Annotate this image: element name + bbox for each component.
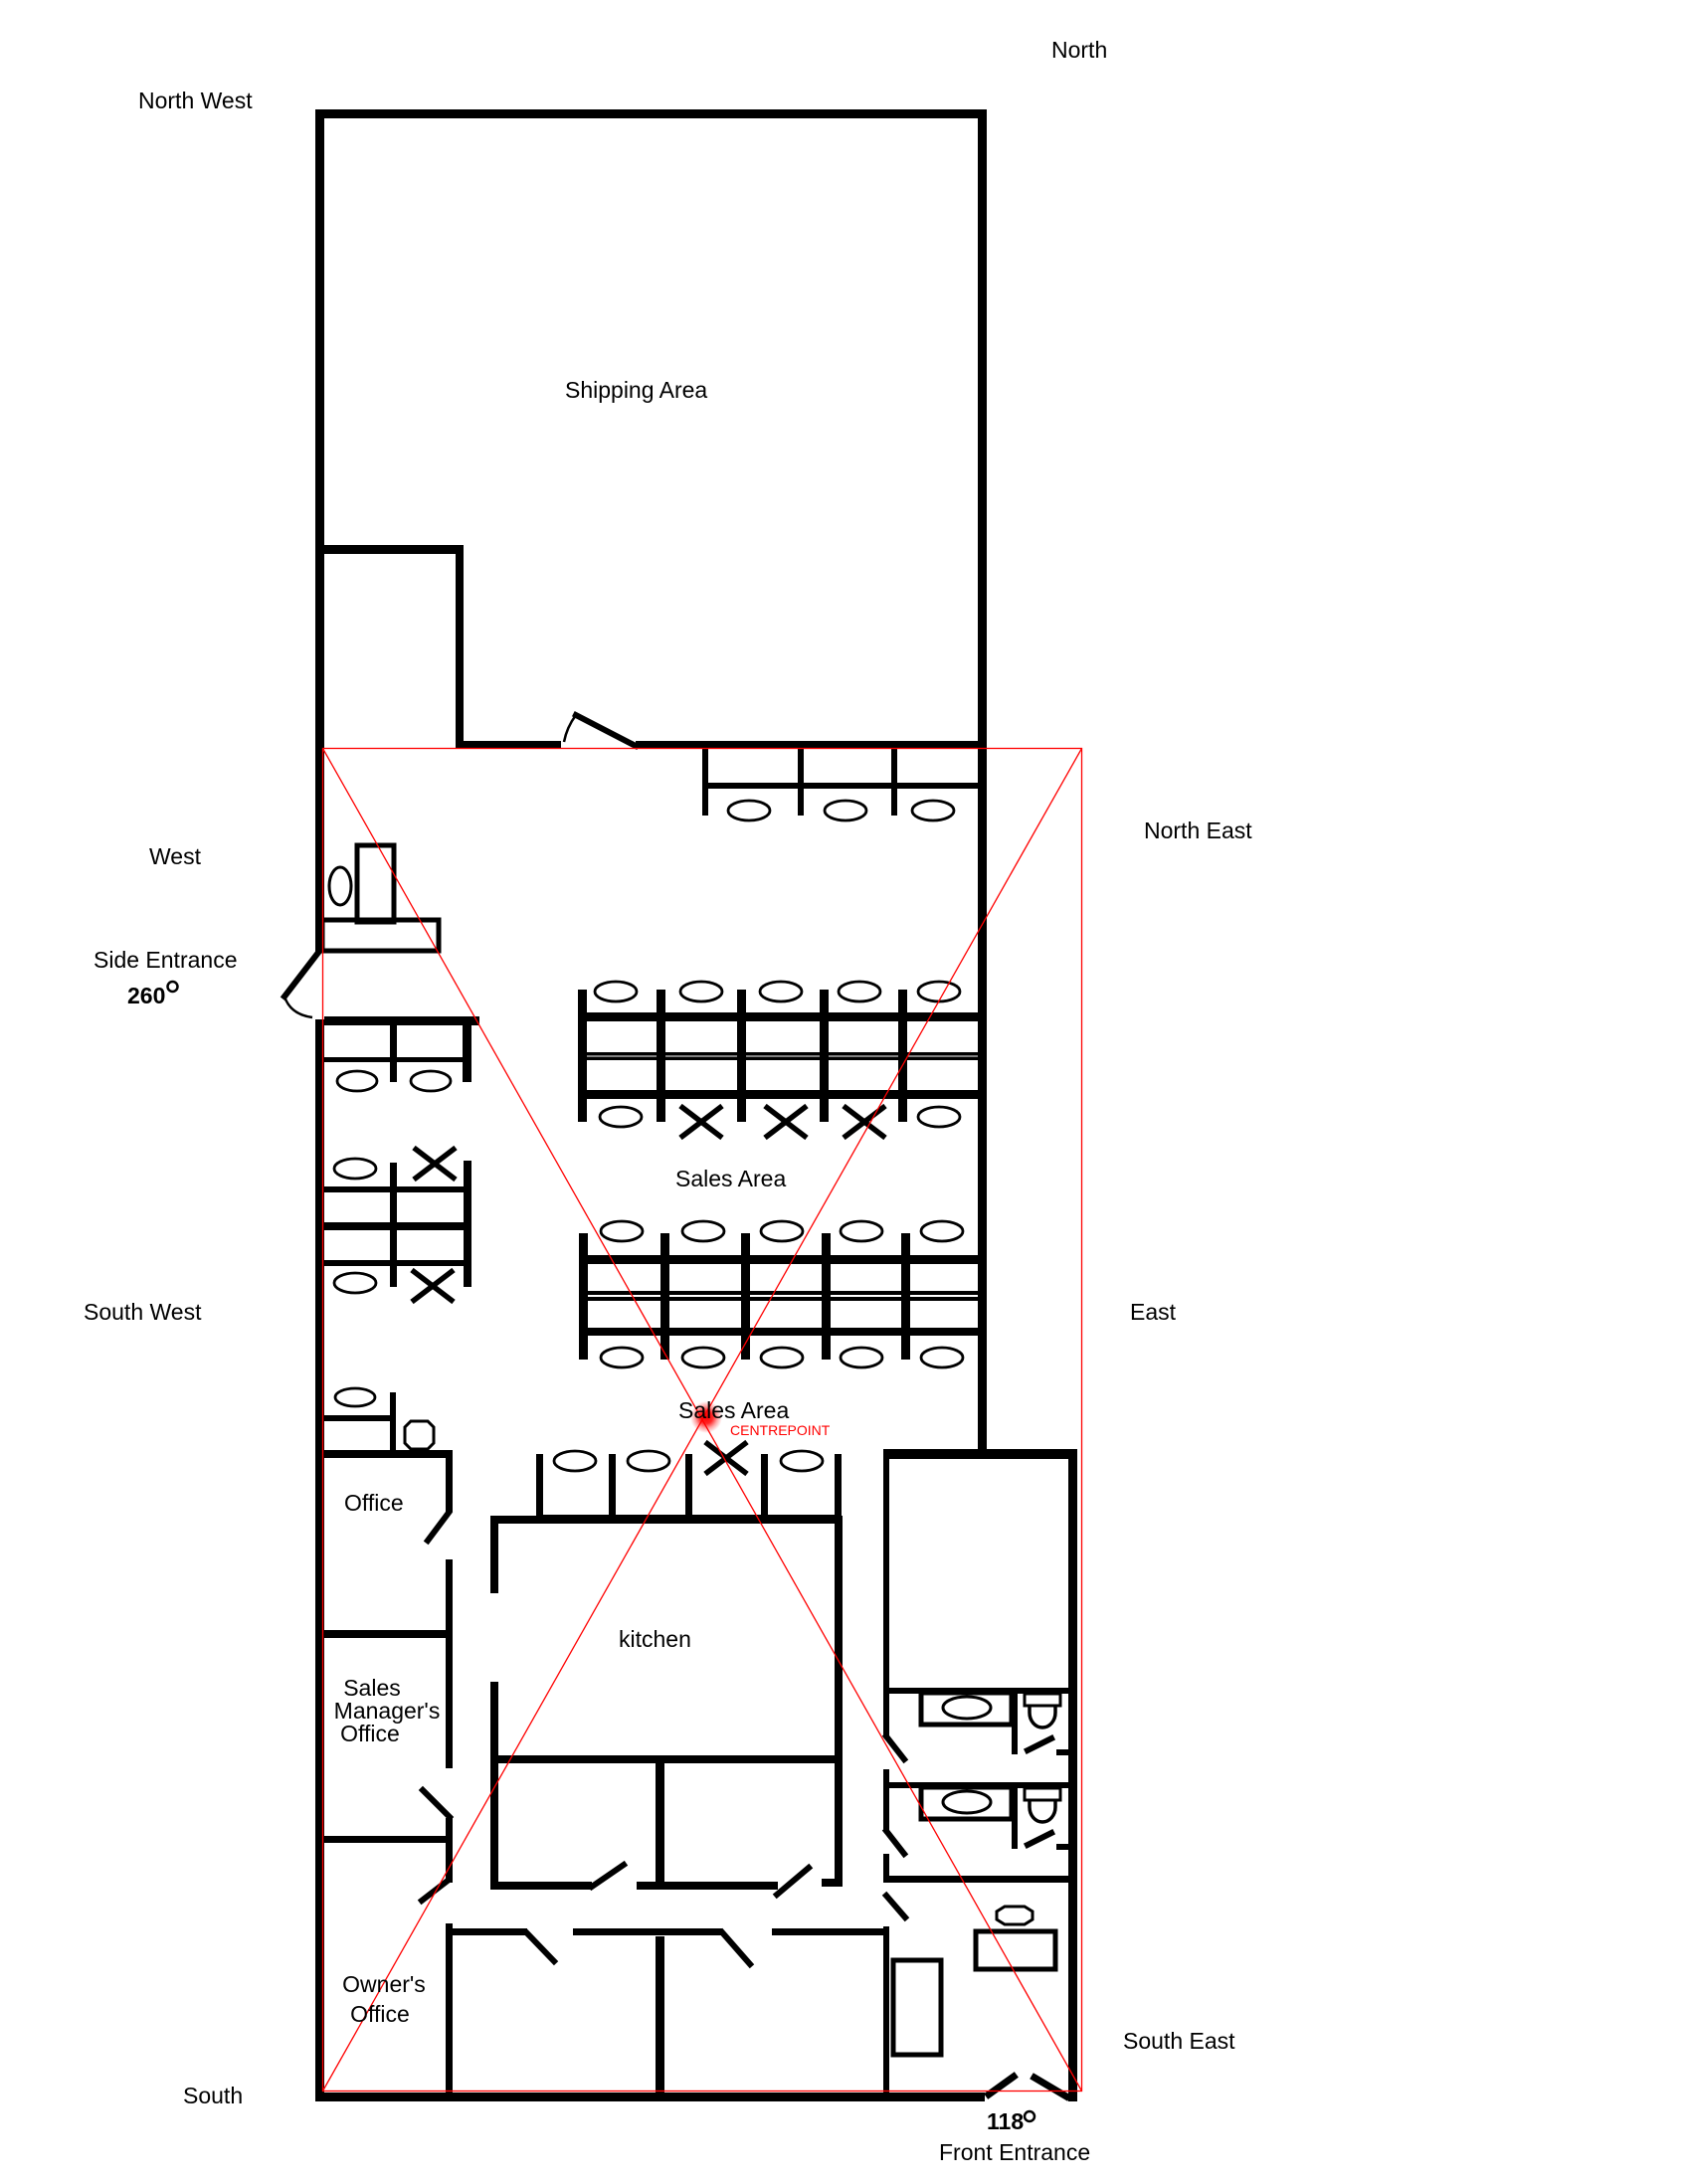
svg-text:West: West (149, 843, 202, 869)
svg-text:Shipping Area: Shipping Area (565, 377, 707, 403)
svg-text:Office: Office (344, 1490, 404, 1516)
svg-text:North East: North East (1144, 818, 1252, 843)
svg-text:Sales Area: Sales Area (675, 1166, 786, 1191)
svg-text:South East: South East (1123, 2028, 1235, 2054)
svg-text:kitchen: kitchen (619, 1626, 691, 1652)
svg-text:South West: South West (84, 1299, 202, 1325)
svg-text:Owner's: Owner's (342, 1971, 426, 1997)
svg-text:Office: Office (340, 1721, 400, 1746)
svg-text:260: 260 (127, 983, 165, 1008)
svg-text:118: 118 (987, 2108, 1024, 2134)
svg-text:Sales Area: Sales Area (678, 1397, 789, 1423)
svg-text:Side Entrance: Side Entrance (94, 947, 237, 973)
svg-text:North West: North West (138, 88, 253, 113)
svg-text:Office: Office (350, 2001, 410, 2027)
svg-text:CENTREPOINT: CENTREPOINT (730, 1422, 831, 1438)
svg-text:East: East (1130, 1299, 1177, 1325)
svg-text:North: North (1051, 37, 1107, 63)
svg-text:South: South (183, 2083, 243, 2108)
svg-text:Front Entrance: Front Entrance (939, 2139, 1090, 2165)
